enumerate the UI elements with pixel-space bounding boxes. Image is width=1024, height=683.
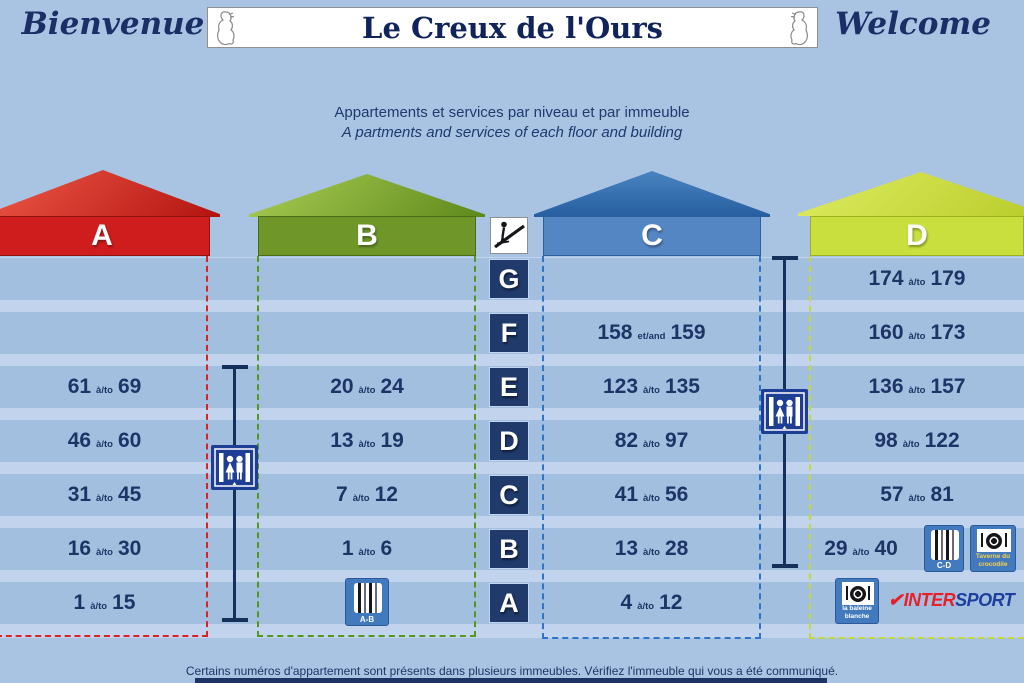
plate-panel [842,582,874,605]
fork-icon [846,586,848,600]
apt-from: 136 [869,375,904,399]
apt-separator: et/and [638,331,666,342]
apt-to: 28 [665,537,688,561]
floor-letter: G [498,264,519,295]
apartments-d-floor-d: 98 à/to 122 [812,420,1022,462]
intersport-logo: ✔INTERSPORT [888,590,1018,612]
site-title: Le Creux de l'Ours [208,8,817,49]
apartments-c-floor-e: 123 à/to 135 [544,366,759,408]
apt-to: 24 [380,375,403,399]
elevator-icon-ab [211,445,258,490]
ski-room-ab-label: A-B [346,615,388,624]
ski-room-cd-icon: C-D [924,525,964,572]
roof-building-a [0,170,220,217]
apt-to: 6 [380,537,392,561]
roof-building-b [249,174,485,217]
ski-panel [354,583,382,613]
elevator-shaft-ab [233,368,236,620]
ski-panel [931,530,959,560]
apt-from: 7 [336,483,348,507]
banner-building-a: A [0,216,210,256]
apartments-d-floor-g: 174 à/to 179 [812,258,1022,300]
label-line1: Taverne du [976,553,1010,560]
greeting-french: Bienvenue [18,6,208,42]
apt-separator: à/to [909,493,926,504]
ski-room-cd-label: C-D [925,561,963,570]
apt-from: 1 [342,537,354,561]
apt-from: 158 [597,321,632,345]
apt-separator: à/to [353,493,370,504]
elevator-shaft-cap [772,256,798,260]
floor-letter: C [499,480,519,511]
restaurant-baleine-label: la baleine blanche [836,605,878,621]
apartments-c-floor-a: 4 à/to 12 [544,582,759,624]
floor-letter: B [499,534,519,565]
floor-square-d: D [489,421,529,461]
floor-letter: A [499,588,519,619]
apt-from: 41 [615,483,638,507]
fork-icon [981,533,983,547]
apt-separator: à/to [359,439,376,450]
apartments-d-floor-b: 29 à/to 40 [806,528,916,570]
floor-square-c: C [489,475,529,515]
ski-lift-icon [490,217,528,254]
label-line2: crocodile [979,561,1008,568]
apt-to: 45 [118,483,141,507]
building-d-label: D [906,219,928,253]
plate-icon [850,586,866,602]
apt-to: 69 [118,375,141,399]
apartments-d-floor-c: 57 à/to 81 [812,474,1022,516]
apartments-a-floor-c: 31 à/to 45 [2,474,207,516]
elevator-icon-cd [761,389,808,434]
apt-separator: à/to [643,547,660,558]
apt-to: 12 [659,591,682,615]
ski-room-ab-icon: A-B [345,578,389,626]
footer-notice: Certains numéros d'appartement sont prés… [0,664,1024,678]
apt-to: 12 [375,483,398,507]
elevator-shaft-cap [222,365,248,369]
apt-separator: à/to [643,493,660,504]
apt-to: 60 [118,429,141,453]
footer-bar [195,678,827,683]
greeting-english: Welcome [818,6,1008,42]
roof-building-d [798,172,1024,216]
subtitle-french: Appartements et services par niveau et p… [0,104,1024,121]
subtitle-english: A partments and services of each floor a… [0,124,1024,141]
knife-icon [868,586,870,600]
apartments-b-floor-b: 1 à/to 6 [259,528,475,570]
apt-from: 82 [615,429,638,453]
floor-square-a: A [489,583,529,623]
apt-separator: à/to [359,547,376,558]
apartments-c-floor-f: 158 et/and 159 [544,312,759,354]
apt-from: 31 [68,483,91,507]
floor-square-e: E [489,367,529,407]
apartments-c-floor-c: 41 à/to 56 [544,474,759,516]
apt-to: 81 [930,483,953,507]
apt-from: 20 [330,375,353,399]
floor-square-g: G [489,259,529,299]
apt-to: 179 [930,267,965,291]
apt-to: 15 [112,591,135,615]
apartments-a-floor-d: 46 à/to 60 [2,420,207,462]
apt-separator: à/to [96,493,113,504]
apt-to: 56 [665,483,688,507]
plate-icon [986,533,1002,549]
apartments-d-floor-f: 160 à/to 173 [812,312,1022,354]
apt-from: 61 [68,375,91,399]
roof-building-c [534,171,770,217]
apt-from: 160 [869,321,904,345]
apartments-d-floor-e: 136 à/to 157 [812,366,1022,408]
marmot-icon [786,9,812,47]
apt-from: 13 [615,537,638,561]
apt-separator: à/to [96,547,113,558]
apartments-a-floor-b: 16 à/to 30 [2,528,207,570]
apt-separator: à/to [643,439,660,450]
apartments-a-floor-a: 1 à/to 15 [2,582,207,624]
restaurant-taverne-icon: Taverne du crocodile [970,525,1016,572]
apt-separator: à/to [909,331,926,342]
apt-to: 40 [874,537,897,561]
apt-from: 4 [621,591,633,615]
apt-to: 157 [930,375,965,399]
title-banner: Le Creux de l'Ours [207,7,818,48]
apartments-c-floor-b: 13 à/to 28 [544,528,759,570]
elevator-shaft-cap [222,618,248,622]
apt-from: 1 [74,591,86,615]
elevator-shaft-cap [772,564,798,568]
banner-building-d: D [810,216,1024,256]
building-c-label: C [641,219,663,253]
apartments-a-floor-e: 61 à/to 69 [2,366,207,408]
apt-from: 46 [68,429,91,453]
apt-from: 29 [824,537,847,561]
building-a-label: A [91,219,113,253]
apt-to: 173 [930,321,965,345]
apt-from: 174 [869,267,904,291]
apartments-c-floor-d: 82 à/to 97 [544,420,759,462]
apartments-b-floor-d: 13 à/to 19 [259,420,475,462]
restaurant-baleine-icon: la baleine blanche [835,578,879,624]
apt-to: 159 [670,321,705,345]
apartments-b-floor-c: 7 à/to 12 [259,474,475,516]
apt-separator: à/to [96,385,113,396]
apt-separator: à/to [903,439,920,450]
apt-separator: à/to [96,439,113,450]
apt-separator: à/to [909,385,926,396]
knife-icon [1005,533,1007,547]
banner-building-c: C [543,216,761,256]
apt-separator: à/to [909,277,926,288]
restaurant-taverne-label: Taverne du crocodile [971,553,1015,569]
apt-to: 122 [925,429,960,453]
building-b-label: B [356,219,378,253]
apt-to: 30 [118,537,141,561]
apt-separator: à/to [643,385,660,396]
label-line1: la baleine [842,605,872,612]
apt-separator: à/to [90,601,107,612]
intersport-text-red: INTER [904,590,956,610]
apt-to: 97 [665,429,688,453]
apt-to: 135 [665,375,700,399]
apt-separator: à/to [359,385,376,396]
apt-separator: à/to [853,547,870,558]
intersport-check-icon: ✔ [888,590,903,610]
banner-building-b: B [258,216,476,256]
apt-from: 16 [68,537,91,561]
floor-square-b: B [489,529,529,569]
floor-square-f: F [489,313,529,353]
apartments-b-floor-e: 20 à/to 24 [259,366,475,408]
intersport-text-blue: SPORT [955,590,1014,610]
apt-from: 13 [330,429,353,453]
floor-letter: E [500,372,518,403]
floor-letter: D [499,426,519,457]
apt-separator: à/to [637,601,654,612]
label-line2: blanche [845,613,870,620]
apt-from: 57 [880,483,903,507]
floor-letter: F [501,318,518,349]
apt-from: 98 [874,429,897,453]
apt-from: 123 [603,375,638,399]
apt-to: 19 [380,429,403,453]
directory-board: Bienvenue Le Creux de l'Ours Welcome App… [0,0,1024,683]
plate-panel [977,529,1011,552]
